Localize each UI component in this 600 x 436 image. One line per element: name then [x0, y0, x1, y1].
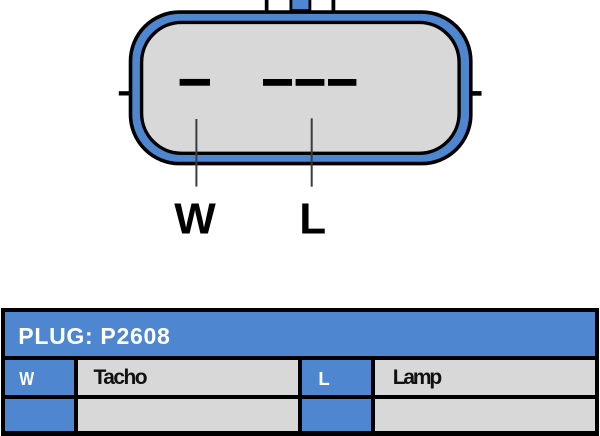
svg-text:W: W [174, 195, 216, 244]
svg-text:L: L [299, 195, 326, 244]
